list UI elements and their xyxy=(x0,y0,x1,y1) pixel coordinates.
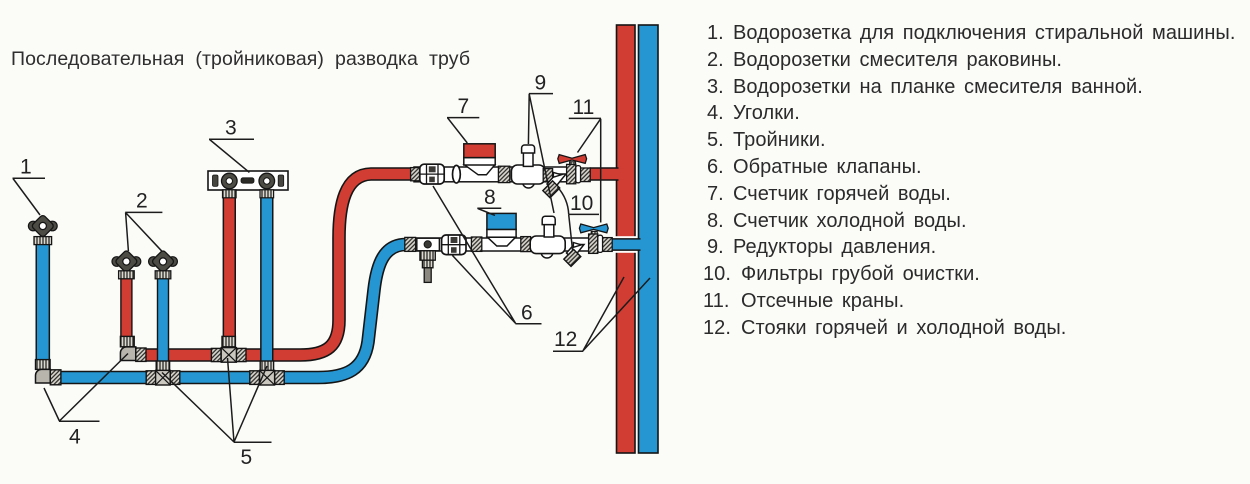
svg-text:2: 2 xyxy=(136,190,148,213)
svg-text:5: 5 xyxy=(241,446,253,469)
svg-text:11: 11 xyxy=(573,96,595,119)
svg-text:1: 1 xyxy=(20,156,32,179)
svg-text:3: 3 xyxy=(225,117,237,140)
svg-text:12: 12 xyxy=(554,328,577,351)
svg-text:6: 6 xyxy=(521,302,533,325)
svg-text:10: 10 xyxy=(570,192,593,215)
svg-text:4: 4 xyxy=(69,426,81,449)
svg-text:8: 8 xyxy=(484,186,496,209)
svg-text:9: 9 xyxy=(535,72,547,95)
svg-text:7: 7 xyxy=(458,95,470,118)
